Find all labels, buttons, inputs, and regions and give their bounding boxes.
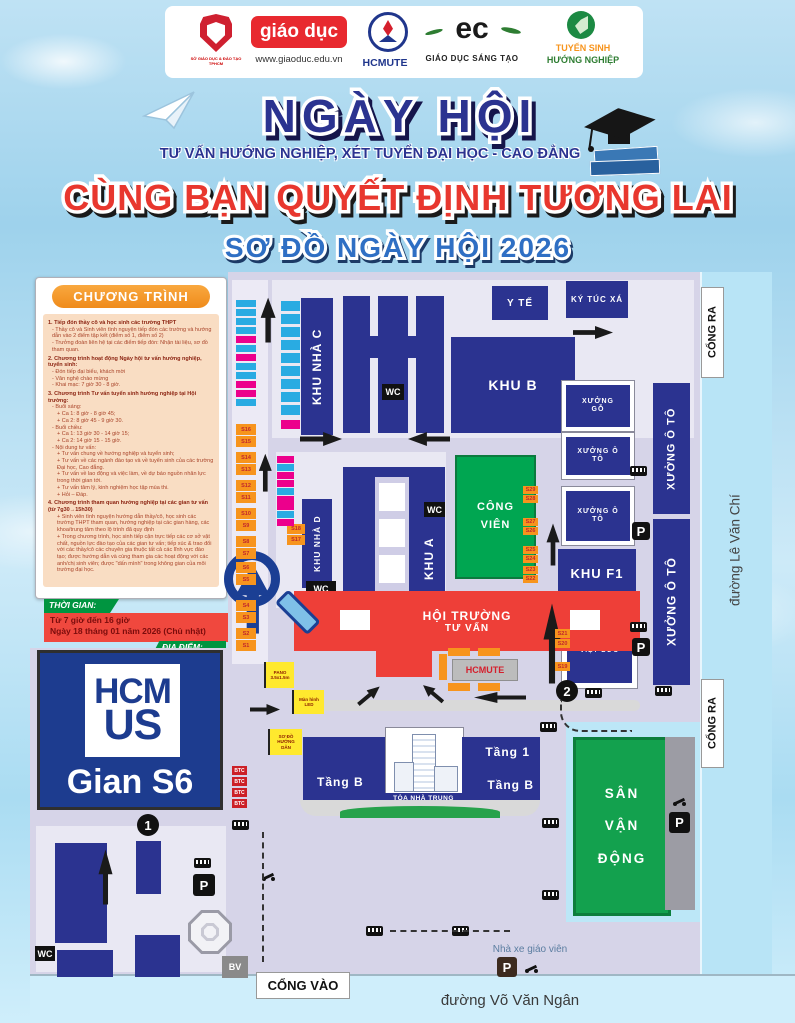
booth-s26: S26 xyxy=(523,527,538,535)
program-line: - Văn nghệ chào mừng xyxy=(52,376,214,383)
building-khu-nha-c: KHU NHÀ C xyxy=(301,298,333,435)
building-h-left-wing xyxy=(343,296,370,433)
booth-s14: S14 xyxy=(236,452,256,463)
gate-out-top: CỔNG RA xyxy=(701,287,724,378)
tower-art xyxy=(412,734,436,792)
booth-marker xyxy=(236,336,256,343)
program-section-heading: 4. Chương trình tham quan hướng nghiệp t… xyxy=(48,500,214,513)
wc-sign: WC xyxy=(424,502,445,517)
wc-sign: WC xyxy=(382,384,404,400)
program-line: - Buổi sáng: xyxy=(52,404,214,411)
booth-marker xyxy=(236,300,256,307)
event-subtitle: TƯ VẤN HƯỚNG NGHIỆP, XÉT TUYỂN ĐẠI HỌC -… xyxy=(110,146,630,162)
building-block xyxy=(57,950,113,977)
building-xuong-o-to-vert-1: XƯỞNG Ô TÔ xyxy=(653,383,690,514)
building-xuong-o-to-a: XƯỞNG Ô TÔ xyxy=(561,432,635,480)
bv-sign: BV xyxy=(222,956,248,978)
booth-s8: S8 xyxy=(236,536,256,547)
booth-s22: S22 xyxy=(523,575,538,583)
booth-marker xyxy=(236,345,256,352)
building-block xyxy=(55,843,107,943)
building-xuong-go: XƯỞNG GỖ xyxy=(561,380,635,432)
meeting-point-1: 1 xyxy=(137,814,159,836)
road-vo-van-ngan-label: đường Võ Văn Ngân xyxy=(400,992,620,1009)
logo-bar: SỞ GIÁO DỤC & ĐÀO TẠO TPHCM giáo dục www… xyxy=(165,6,643,78)
building-hoi-truong-annex xyxy=(376,651,432,677)
building-block xyxy=(136,841,161,894)
time-banner: Từ 7 giờ đến 16 giờ Ngày 18 tháng 01 năm… xyxy=(44,613,228,642)
program-panel: CHƯƠNG TRÌNH 1. Tiếp đón thầy cô và học … xyxy=(35,277,227,599)
building-khu-nha-d: KHU NHÀ D xyxy=(302,499,332,588)
stadium-san-van-dong: SÂN VẬN ĐỘNG xyxy=(573,737,671,916)
bus-icon xyxy=(542,818,559,828)
program-body: 1. Tiếp đón thầy cô và học sinh các trườ… xyxy=(43,314,219,587)
program-line: + Tư vấn tâm lý, kinh nghiệm học tập mùa… xyxy=(57,485,214,492)
tower-art xyxy=(394,762,414,792)
booth-marker xyxy=(281,353,300,363)
booth-marker xyxy=(277,503,294,510)
booth-marker xyxy=(236,327,256,334)
booth-marker xyxy=(277,472,294,479)
booth-marker xyxy=(236,381,256,388)
booth-marker xyxy=(277,464,294,471)
booth-marker xyxy=(281,420,300,429)
bus-icon xyxy=(194,858,211,868)
booth-s29: S29 xyxy=(523,486,538,494)
ec-caption: GIÁO DỤC SÁNG TẠO xyxy=(417,54,527,63)
building-khu-b: KHU B xyxy=(451,337,575,433)
ec-wordmark: ec xyxy=(447,12,497,46)
hoi-truong-line1: HỘI TRƯỜNG xyxy=(423,609,512,623)
bus-icon xyxy=(655,686,672,696)
program-line: - Đón tiếp đại biểu, khách mời xyxy=(52,369,214,376)
event-slogan-text: CÙNG BẠN QUYẾT ĐỊNH TƯƠNG LAI xyxy=(63,176,733,218)
booth-marker xyxy=(277,496,294,503)
motorbike-icon xyxy=(673,795,687,806)
booth-marker xyxy=(277,480,294,487)
booth-s20: S20 xyxy=(555,639,570,648)
bus-icon xyxy=(630,622,647,632)
building-tang-b-wing: Tầng B xyxy=(303,737,385,800)
motorbike-icon xyxy=(525,962,539,973)
wc-sign: WC xyxy=(35,946,55,961)
program-line: + Tư vấn về các ngành đào tạo và về tuyể… xyxy=(57,458,214,471)
booth-marker xyxy=(448,648,470,656)
building-y-te: Y TẾ xyxy=(492,286,548,320)
booth-s11: S11 xyxy=(236,492,256,503)
giao-duc-wordmark: giáo dục xyxy=(260,21,338,43)
parking-sign: P xyxy=(632,522,650,540)
time-label: THỜI GIAN: xyxy=(44,599,119,613)
program-line: + Trong chương trình, học sinh tiếp cận … xyxy=(57,534,214,574)
booth-marker xyxy=(277,488,294,495)
booth-marker xyxy=(448,683,470,691)
booth-s9: S9 xyxy=(236,520,256,531)
time-line1: Từ 7 giờ đến 16 giờ xyxy=(50,615,228,626)
booth-s21: S21 xyxy=(555,629,570,638)
leaf-icon xyxy=(567,11,595,39)
bus-icon xyxy=(366,926,383,936)
booth-s13: S13 xyxy=(236,464,256,475)
building-h-crossbar xyxy=(368,336,418,358)
booth-marker xyxy=(236,363,256,370)
booth-marker xyxy=(236,390,256,397)
program-heading: CHƯƠNG TRÌNH xyxy=(52,285,210,308)
booth-marker xyxy=(281,340,300,350)
btc-booth: BTC xyxy=(232,788,247,797)
building-khu-a-label: KHU A xyxy=(417,519,441,599)
booth-marker xyxy=(236,318,256,325)
program-line: + Ca 1: 8 giờ - 8 giờ 45; xyxy=(57,411,214,418)
booth-s6: S6 xyxy=(236,562,256,573)
booth-marker xyxy=(281,314,300,324)
booth-s15: S15 xyxy=(236,436,256,447)
booth-marker xyxy=(236,354,256,361)
program-line: - Khai mạc: 7 giờ 30 - 8 giờ. xyxy=(52,382,214,389)
program-line: - Thầy cô và Sinh viên tình nguyện tiếp … xyxy=(52,327,214,340)
event-slogan: CÙNG BẠN QUYẾT ĐỊNH TƯƠNG LAI xyxy=(18,166,778,228)
led-screen-sign: Màn hình LED xyxy=(292,690,324,714)
program-line: + Hỏi – Đáp. xyxy=(57,492,214,499)
booth-marker xyxy=(236,399,256,406)
booth-s23: S23 xyxy=(523,566,538,574)
hcmute-map-sign: HCMUTE xyxy=(452,659,518,681)
bus-icon xyxy=(540,722,557,732)
booth-marker xyxy=(236,309,256,316)
booth-marker xyxy=(478,648,500,656)
shield-icon xyxy=(200,14,232,52)
tuyen-sinh-line1: TUYỂN SINH xyxy=(533,43,633,53)
building-xuong-o-to-vert-2: XƯỞNG Ô TÔ xyxy=(653,519,690,685)
hoi-truong-line2: TƯ VẤN xyxy=(445,623,489,634)
parking-sign: P xyxy=(193,874,215,896)
booth-s12: S12 xyxy=(236,480,256,491)
booth-s16: S16 xyxy=(236,424,256,435)
event-title-text: NGÀY HỘI xyxy=(263,90,538,142)
booth-marker xyxy=(281,379,300,389)
bus-route xyxy=(390,930,510,934)
time-line2: Ngày 18 tháng 01 năm 2026 (Chủ nhật) xyxy=(50,626,228,637)
booth-marker xyxy=(236,372,256,379)
booth-marker xyxy=(277,511,294,518)
booth-s2: S2 xyxy=(236,628,256,639)
building-tang-1-wing: Tầng 1 Tầng B xyxy=(462,737,540,800)
booth-s4: S4 xyxy=(236,600,256,611)
booth-marker xyxy=(281,405,300,415)
hcmute-emblem-icon xyxy=(368,12,408,52)
booth-marker xyxy=(281,327,300,337)
pano-sign: PANO 3.5x1.5m xyxy=(264,662,294,688)
program-line: + Ca 2: 8 giờ 45 - 9 giờ 30. xyxy=(57,418,214,425)
booth-marker xyxy=(281,301,300,311)
meeting-point-2: 2 xyxy=(556,680,578,702)
event-poster: SỞ GIÁO DỤC & ĐÀO TẠO TPHCM giáo dục www… xyxy=(0,0,795,1023)
building-block xyxy=(135,935,180,977)
giao-duc-url: www.giaoduc.edu.vn xyxy=(247,54,351,65)
booth-s24: S24 xyxy=(523,555,538,563)
program-line: + Ca 1: 13 giờ 30 - 14 giờ 15; xyxy=(57,431,214,438)
booth-s27: S27 xyxy=(523,518,538,526)
tower-art xyxy=(434,766,458,792)
booth-callout-label: Gian S6 xyxy=(40,763,220,802)
bus-icon xyxy=(630,466,647,476)
building-khu-f1: KHU F1 xyxy=(558,549,636,597)
gate-in: CỔNG VÀO xyxy=(256,972,350,999)
program-section-heading: 2. Chương trình hoạt động Ngày hội tư vấ… xyxy=(48,356,214,369)
booth-marker xyxy=(277,456,294,463)
hcmute-logo: HCMUTE xyxy=(357,11,413,75)
so-gddt-caption: SỞ GIÁO DỤC & ĐÀO TẠO TPHCM xyxy=(183,56,249,66)
parking-sign: P xyxy=(669,812,690,833)
booth-marker xyxy=(277,519,294,526)
booth-marker xyxy=(439,654,447,680)
booth-s28: S28 xyxy=(523,495,538,503)
booth-marker xyxy=(281,392,300,402)
hcmute-wordmark: HCMUTE xyxy=(357,57,413,69)
tuyen-sinh-logo: TUYỂN SINH HƯỚNG NGHIỆP xyxy=(533,11,633,75)
booth-s3: S3 xyxy=(236,612,256,623)
road-le-van-chi-label: đường Lê Văn Chí xyxy=(722,430,748,670)
booth-s19: S19 xyxy=(555,662,570,671)
btc-booth: BTC xyxy=(232,799,247,808)
building-ky-tuc-xa: KÝ TÚC XÁ xyxy=(566,281,628,318)
so-gddt-logo: SỞ GIÁO DỤC & ĐÀO TẠO TPHCM xyxy=(187,12,245,72)
booth-s1: S1 xyxy=(236,640,256,651)
program-line: + Sinh viên tình nguyện hướng dẫn thầy/c… xyxy=(57,514,214,534)
map-title-text: SƠ ĐỒ NGÀY HỘI 2026 xyxy=(225,231,571,263)
teacher-parking-label: Nhà xe giáo viên xyxy=(460,944,600,955)
giao-duc-logo: giáo dục www.giaoduc.edu.vn xyxy=(247,14,351,74)
hcmus-logo-us: US xyxy=(104,707,162,744)
booth-s25: S25 xyxy=(523,546,538,554)
gate-out-bottom: CỔNG RA xyxy=(701,679,724,768)
program-line: + Tư vấn về lao động và việc làm, về dự … xyxy=(57,471,214,484)
building-trung-tam-center xyxy=(385,727,464,802)
bus-icon xyxy=(542,890,559,900)
booth-s17: S17 xyxy=(287,535,305,545)
program-line: - Trưởng đoàn liên hệ tại các điểm tiếp … xyxy=(52,340,214,353)
bus-route xyxy=(560,700,632,732)
bus-icon xyxy=(232,820,249,830)
btc-booth: BTC xyxy=(232,766,247,775)
building-xuong-o-to-b: XƯỞNG Ô TÔ xyxy=(561,486,635,546)
program-line: - Buổi chiều: xyxy=(52,425,214,432)
btc-booth: BTC xyxy=(232,777,247,786)
tuyen-sinh-line2: HƯỚNG NGHIỆP xyxy=(533,55,633,65)
booth-marker xyxy=(478,683,500,691)
program-section-heading: 3. Chương trình Tư vấn tuyển sinh hướng … xyxy=(48,391,214,404)
bus-route xyxy=(262,832,266,962)
hcmus-logo: HCM US xyxy=(85,664,180,757)
guide-map-sign: SƠ ĐỒ HƯỚNG DẪN xyxy=(268,729,302,755)
program-section-heading: 1. Tiếp đón thầy cô và học sinh các trườ… xyxy=(48,320,214,327)
booth-s5: S5 xyxy=(236,574,256,585)
booth-s10: S10 xyxy=(236,508,256,519)
lawn xyxy=(340,806,500,818)
building-h-right-wing xyxy=(416,296,444,433)
map-title: SƠ ĐỒ NGÀY HỘI 2026 xyxy=(198,224,598,270)
building-hoi-truong: HỘI TRƯỜNG TƯ VẤN xyxy=(294,591,640,651)
booth-s7: S7 xyxy=(236,548,256,559)
building-h-center-wing xyxy=(378,296,408,433)
building-khu-a: KHU A xyxy=(343,467,445,606)
parking-sign: P xyxy=(497,957,517,977)
parking-sign: P xyxy=(632,638,650,656)
program-line: + Ca 2: 14 giờ 15 - 15 giờ. xyxy=(57,438,214,445)
ec-leaf-icon xyxy=(425,28,443,37)
ec-logo: ec GIÁO DỤC SÁNG TẠO xyxy=(417,16,527,74)
booth-marker xyxy=(281,366,300,376)
hcmus-booth-callout: HCM US Gian S6 xyxy=(37,650,223,810)
ec-leaf-icon xyxy=(501,26,522,35)
bus-icon xyxy=(585,688,602,698)
